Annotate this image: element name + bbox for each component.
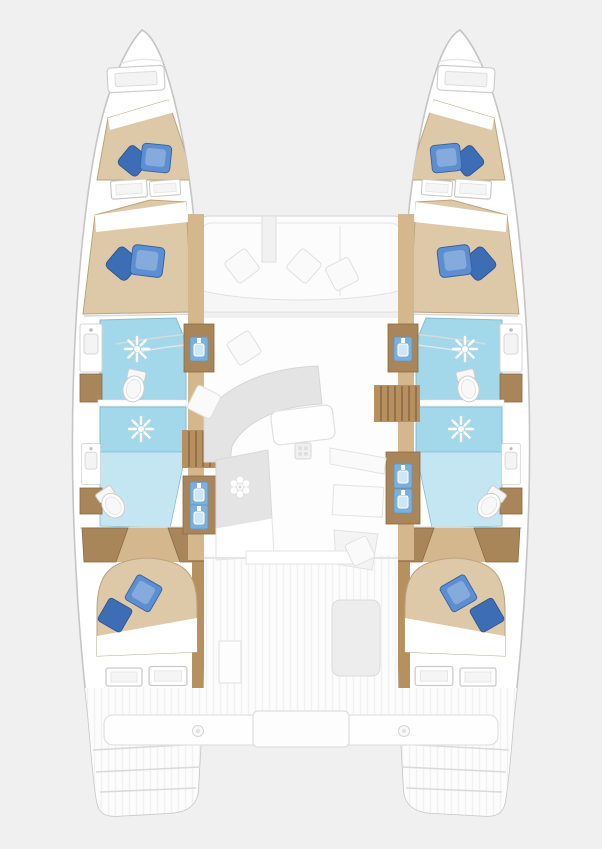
vanity-fwd-left: [80, 324, 102, 372]
window-fwd-cabin-left-1: [110, 179, 147, 199]
basin-fwd-walkway-left: [190, 337, 208, 361]
shower-aft-right: [449, 417, 473, 441]
sink-grate-galley: [295, 443, 311, 459]
basin-aft-walkway-left-2: [190, 505, 208, 529]
floor-plan-svg: [0, 0, 602, 849]
basin-fwd-walkway-right: [394, 337, 412, 361]
shower-fwd-left: [125, 337, 149, 361]
cockpit-table: [332, 600, 380, 676]
basin-aft-walkway-left-1: [190, 482, 208, 506]
window-aft-cabin-right-2: [415, 667, 453, 686]
vanity-aft-right: [502, 444, 521, 485]
vanity-aft-left: [82, 444, 101, 485]
shower-fwd-right: [453, 337, 477, 361]
window-aft-cabin-left-2: [149, 667, 187, 686]
window-aft-cabin-right-1: [460, 668, 496, 686]
bolt-aft-beam-right: [399, 726, 410, 737]
aft-center-step: [253, 711, 349, 747]
basin-aft-walkway-right-1: [394, 464, 412, 488]
window-fwd-cabin-right-2: [421, 179, 453, 196]
hull-steps-right: [374, 385, 420, 422]
bolt-aft-beam-left: [193, 726, 204, 737]
vanity-fwd-right: [500, 324, 522, 372]
salon-table: [270, 404, 336, 445]
sliding-door: [246, 551, 356, 564]
cockpit-seat: [219, 641, 241, 683]
chart-table: [332, 485, 384, 518]
window-aft-cabin-left-1: [106, 668, 142, 686]
shower-aft-left: [129, 417, 153, 441]
window-fwd-cabin-left-2: [149, 179, 181, 196]
bow-hatch-right: [437, 65, 495, 93]
basin-aft-walkway-right-2: [394, 489, 412, 513]
fwd-seat-divider: [262, 216, 276, 262]
catamaran-floor-plan: [0, 0, 602, 849]
window-fwd-cabin-right-1: [454, 179, 491, 199]
bow-hatch-left: [107, 65, 165, 93]
